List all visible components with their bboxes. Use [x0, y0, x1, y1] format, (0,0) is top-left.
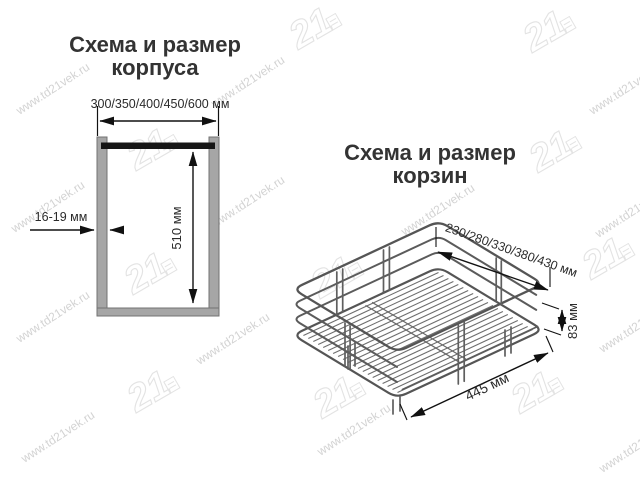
- watermark-logo-ribbon-line: [354, 387, 360, 391]
- watermark-logo-ribbon-line: [625, 252, 631, 256]
- basket-depth-extension-right: [546, 336, 553, 352]
- watermark-logo-ribbon-line: [552, 382, 558, 386]
- watermark-logo-text: 21: [503, 364, 561, 422]
- watermark-logo-ribbon-line: [165, 263, 171, 267]
- cabinet-bottom-panel: [97, 308, 219, 316]
- basket-floor-wire: [373, 315, 508, 378]
- watermark-text: www.td21vek.ru: [596, 298, 640, 356]
- watermark-text: www.td21vek.ru: [13, 288, 93, 346]
- cabinet-left-wall: [97, 137, 107, 308]
- basket-floor-wire: [363, 309, 498, 372]
- watermark-text: www.td21vek.ru: [18, 408, 98, 466]
- cabinet-right-wall: [209, 137, 219, 308]
- watermark-logo: 21: [515, 0, 580, 61]
- watermark-logo-ribbon-line: [168, 139, 174, 143]
- watermark-text: www.td21vek.ru: [8, 178, 88, 236]
- cabinet-title-line1: Схема и размер: [15, 33, 295, 56]
- watermark-logo-text: 21: [574, 230, 632, 288]
- catalog-image: { "cabinet": { "title_line1": "Схема и р…: [0, 0, 640, 480]
- cabinet-thickness-label: 16-19 мм: [35, 210, 88, 224]
- basket-height-extension-bottom: [544, 329, 561, 335]
- watermark-text: www.td21vek.ru: [208, 173, 288, 231]
- cabinet-title: Схема и размер корпуса: [15, 33, 295, 79]
- watermark-logo-ribbon-line: [170, 385, 176, 389]
- watermark-logo-ribbon-line: [168, 381, 174, 385]
- watermark-logo-ribbon-line: [572, 145, 578, 149]
- watermark-logo: 21: [119, 359, 184, 421]
- cabinet-top-rail: [101, 143, 215, 150]
- basket-floor-wire: [328, 288, 463, 351]
- watermark-logo-ribbon-line: [167, 267, 173, 271]
- watermark-logo-text: 21: [119, 363, 177, 421]
- watermark-logo-ribbon-line: [352, 267, 358, 271]
- watermark-logo-ribbon-line: [566, 25, 572, 29]
- basket-height-label: 83 мм: [565, 303, 580, 339]
- basket-title: Схема и размер корзин: [290, 141, 570, 187]
- watermark-logo-ribbon-line: [570, 141, 576, 145]
- watermark-logo-ribbon-line: [330, 18, 336, 22]
- basket-floor-wire: [368, 312, 503, 375]
- basket-height-extension-top: [542, 303, 559, 309]
- watermark-text: www.td21vek.ru: [592, 183, 640, 241]
- watermark-logo-text: 21: [116, 245, 174, 303]
- watermark-logo-ribbon-line: [623, 248, 629, 252]
- cabinet-width-label: 300/350/400/450/600 мм: [91, 97, 230, 111]
- watermark-logo-text: 21: [305, 369, 363, 427]
- watermark-text: www.td21vek.ru: [586, 60, 640, 118]
- basket-title-line1: Схема и размер: [290, 141, 570, 164]
- basket-floor-wire: [358, 306, 493, 369]
- basket-floor-wire: [333, 291, 468, 354]
- watermark-logo-text: 21: [303, 249, 361, 307]
- watermark-text: www.td21vek.ru: [193, 310, 273, 368]
- watermark-logo: 21: [574, 226, 639, 288]
- cabinet-title-line2: корпуса: [15, 56, 295, 79]
- basket-floor-wire: [348, 300, 483, 363]
- diagram-canvas: www.td21vek.ru www.td21vek.ru www.td21ve…: [0, 0, 640, 480]
- cabinet-height-label: 510 мм: [169, 206, 184, 249]
- basket-depth-label: 445 мм: [462, 369, 511, 403]
- watermark-logo-text: 21: [119, 121, 177, 179]
- watermark-logo-text: 21: [515, 3, 573, 61]
- basket-depth-extension-left: [400, 404, 407, 420]
- watermark-logo-ribbon-line: [356, 391, 362, 395]
- watermark-text: www.td21vek.ru: [596, 418, 640, 476]
- basket-title-line2: корзин: [290, 164, 570, 187]
- watermark-logo-ribbon-line: [332, 22, 338, 26]
- basket-floor-wire: [353, 303, 488, 366]
- watermark-logo-ribbon-line: [564, 21, 570, 25]
- watermark-logo: 21: [303, 245, 368, 307]
- watermark-logo-ribbon-line: [554, 386, 560, 390]
